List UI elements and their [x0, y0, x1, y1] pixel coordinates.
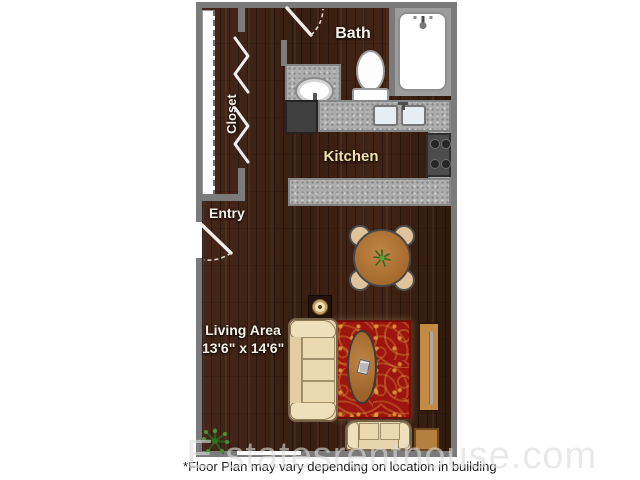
kitchen-faucet-icon [398, 102, 408, 105]
tub-faucet-icon [421, 16, 424, 25]
bathtub [398, 12, 447, 91]
watermark-text: statesrenthouse.com [225, 435, 597, 477]
closet-wall-lower [238, 168, 245, 196]
sofa [288, 318, 338, 422]
entry-label: Entry [209, 205, 245, 221]
tv-console [418, 322, 440, 412]
closet-door-track [202, 10, 215, 196]
kitchen-label: Kitchen [320, 148, 382, 165]
watermark: Estatesrenthouse.com [186, 431, 597, 478]
sofa-arm [290, 402, 336, 420]
sofa-arm [290, 320, 336, 338]
entry-door-opening [196, 222, 202, 258]
bath-wall-stub [281, 40, 287, 66]
side-table [308, 295, 332, 319]
refrigerator [285, 100, 318, 134]
coffee-table [347, 330, 377, 404]
sofa-cushion [302, 381, 335, 403]
burner-icon [441, 159, 451, 169]
living-area-label: Living Area 13'6" x 14'6" [202, 321, 284, 357]
closet-wall-bottom [202, 194, 245, 201]
burner-icon [430, 159, 440, 169]
floor-plan: Bath Closet Kitchen Entry Living Area 13… [196, 2, 457, 457]
closet-wall-upper [238, 8, 245, 32]
kitchen-sink-basin-left [373, 105, 398, 126]
living-area-dimensions: 13'6" x 14'6" [202, 339, 284, 357]
sofa-backrest [290, 337, 302, 403]
living-area-name: Living Area [202, 321, 284, 339]
toilet-bowl [356, 50, 385, 92]
kitchen-counter-peninsula [288, 178, 451, 206]
closet-label: Closet [224, 82, 240, 146]
dining-table [353, 229, 411, 287]
bath-label: Bath [327, 25, 379, 43]
sofa-cushion [302, 359, 335, 381]
tub-alcove [395, 8, 451, 96]
watermark-prefix: E [186, 431, 214, 477]
floor-plan-page: Bath Closet Kitchen Entry Living Area 13… [0, 0, 640, 480]
burner-icon [430, 139, 440, 149]
burner-icon [441, 139, 451, 149]
stove [426, 133, 451, 177]
centerpiece-plant-icon [372, 248, 392, 268]
tv-screen-icon [429, 331, 433, 405]
magazines-icon [356, 359, 370, 375]
table-lamp-icon [312, 299, 328, 315]
sofa-cushion [302, 337, 335, 359]
